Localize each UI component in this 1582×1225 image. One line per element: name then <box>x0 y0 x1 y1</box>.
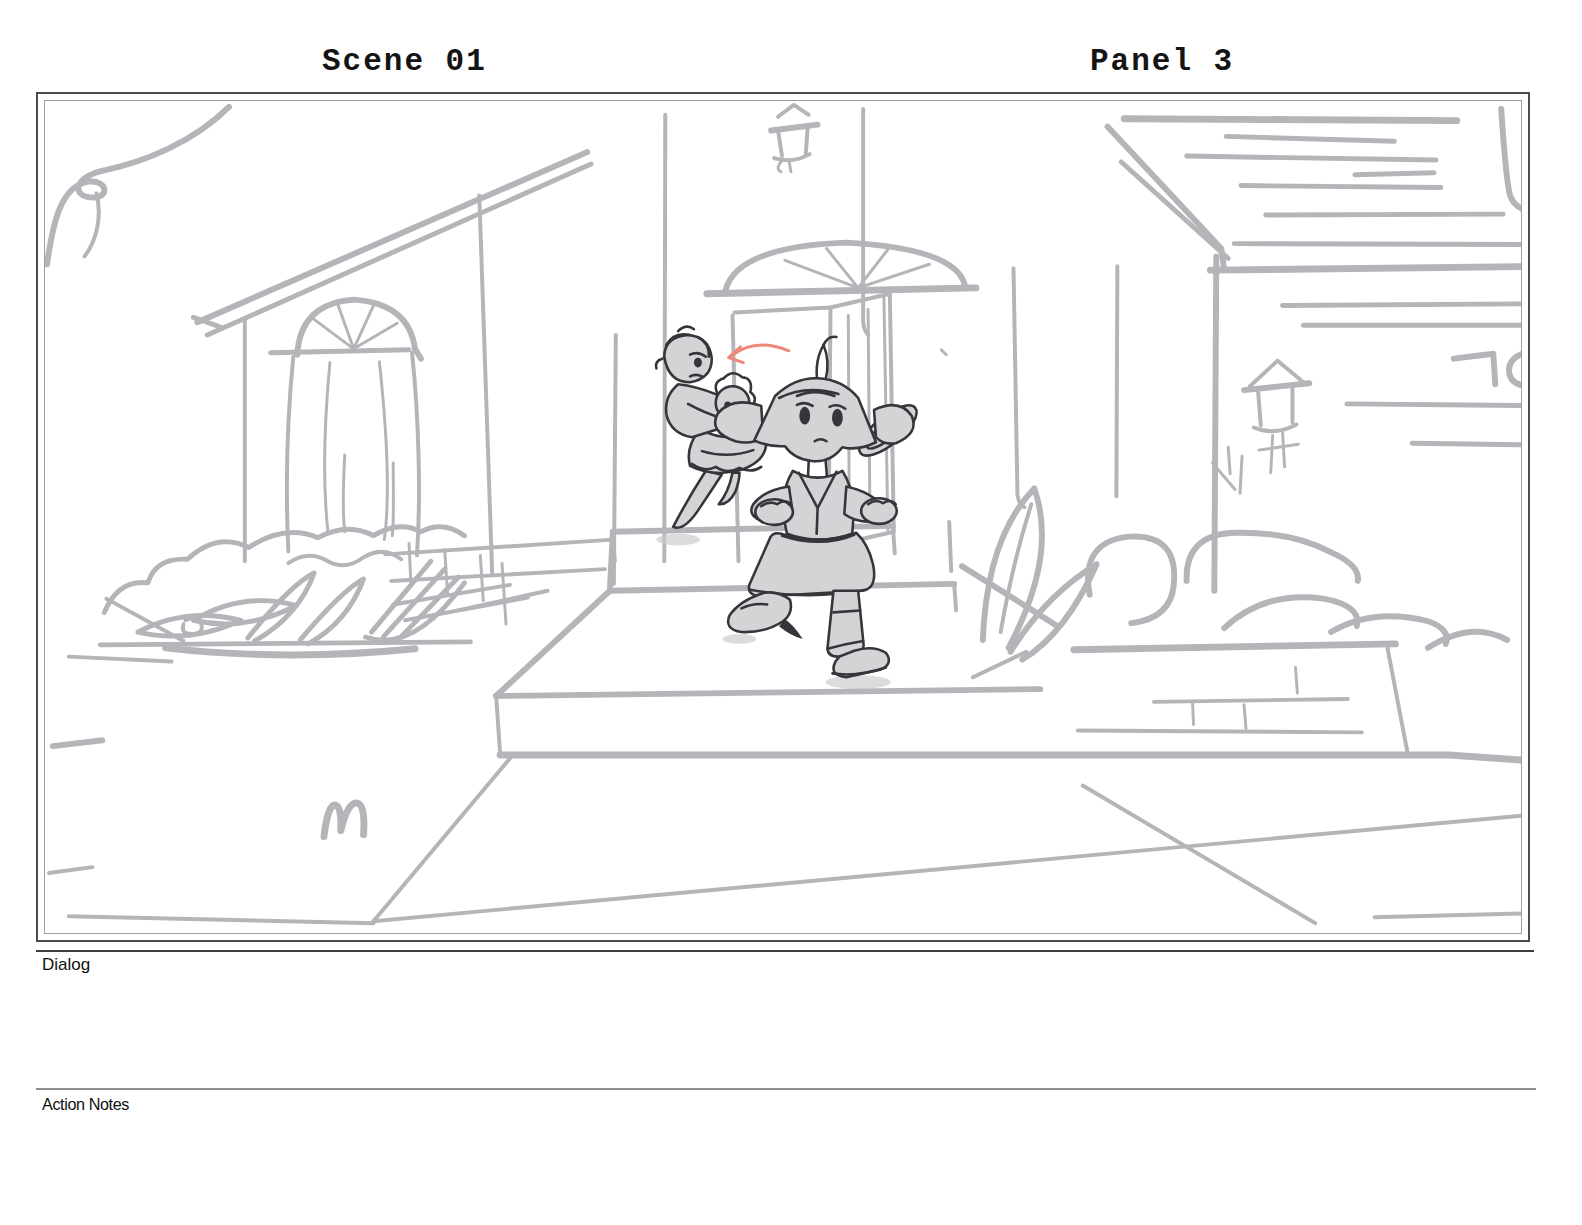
annotation-arrow <box>729 345 789 363</box>
storyboard-page: Scene 01 Panel 3 <box>0 0 1582 1225</box>
dialog-label: Dialog <box>42 955 90 975</box>
storyboard-sketch <box>45 101 1521 933</box>
right-bushes-planter <box>962 488 1507 751</box>
panel-number: Panel 3 <box>1090 44 1234 79</box>
action-notes-label: Action Notes <box>42 1095 129 1115</box>
storyboard-frame <box>36 92 1530 942</box>
tree-swirl <box>47 107 229 264</box>
action-notes-divider <box>36 1088 1536 1090</box>
dialog-divider <box>36 950 1534 952</box>
right-house <box>1107 109 1521 591</box>
steps-and-railing <box>385 522 1040 753</box>
ground-sidewalk <box>49 740 1521 923</box>
left-house <box>193 152 591 573</box>
scene-title: Scene 01 <box>322 44 487 79</box>
storyboard-frame-inner <box>44 100 1522 934</box>
